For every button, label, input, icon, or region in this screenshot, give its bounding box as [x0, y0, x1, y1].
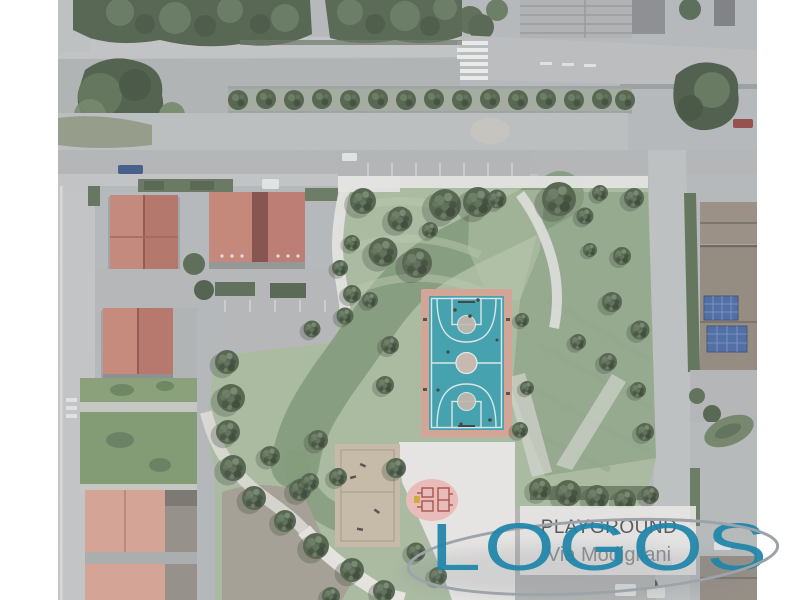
- svg-text:LOGOS: LOGOS: [430, 510, 770, 585]
